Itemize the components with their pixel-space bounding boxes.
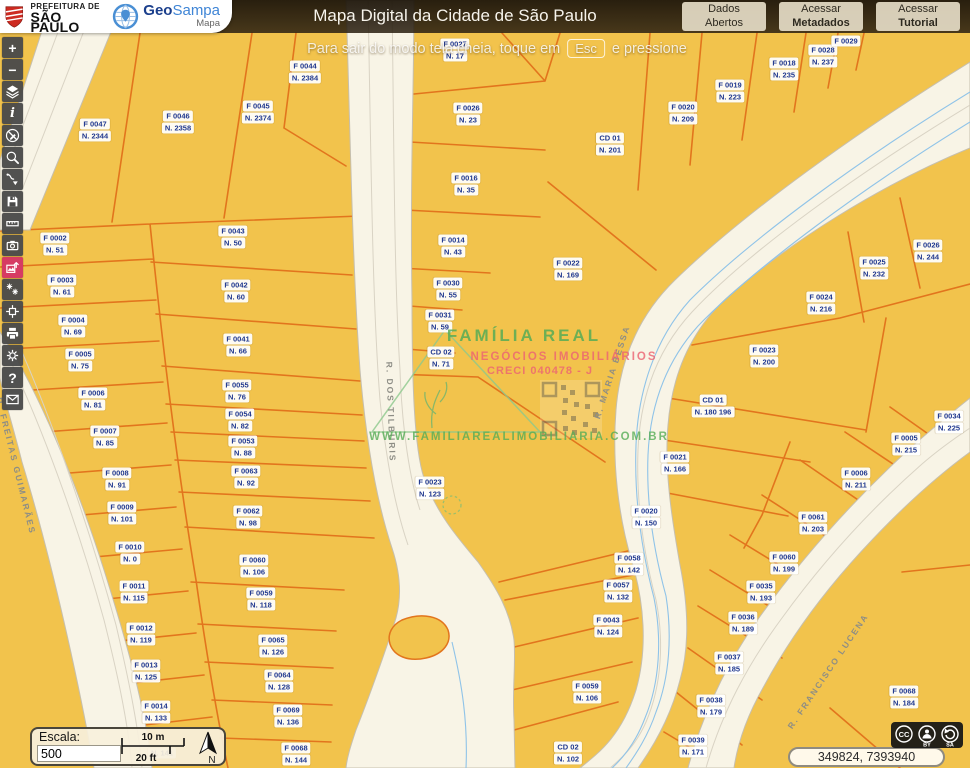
- tool-settings[interactable]: [2, 345, 23, 366]
- layers-icon: [5, 84, 20, 99]
- scale-bar: 10 m 20 ft: [118, 730, 190, 765]
- cc-by-label: BY: [923, 743, 931, 749]
- tool-print[interactable]: [2, 323, 23, 344]
- save-icon: [5, 194, 20, 209]
- search-icon: [5, 150, 20, 165]
- header-button-tutorial[interactable]: AcessarTutorial: [876, 2, 960, 31]
- north-arrow-icon: N: [195, 730, 221, 765]
- disable-drawing-icon: [5, 128, 20, 143]
- header-button-abertos[interactable]: DadosAbertos: [682, 2, 766, 31]
- settings-icon: [5, 348, 20, 363]
- prefeitura-label-line2: SÃO PAULO: [31, 12, 102, 32]
- tool-measure[interactable]: [2, 213, 23, 234]
- header-button-metadados[interactable]: AcessarMetadados: [779, 2, 863, 31]
- page-title: Mapa Digital da Cidade de São Paulo: [313, 6, 597, 26]
- tool-zoom-in[interactable]: +: [2, 37, 23, 58]
- geosampa-globe-icon: [112, 3, 139, 30]
- header-button-line1: Dados: [691, 3, 757, 17]
- header-button-line2: Tutorial: [885, 17, 951, 31]
- cc-by-person-icon: [925, 730, 929, 734]
- traffic-island: [389, 616, 449, 659]
- map-canvas[interactable]: FAMÍLIA REAL NEGÓCIOS IMOBILIÁRIOS CRECI…: [0, 0, 970, 768]
- tool-center-map[interactable]: [2, 301, 23, 322]
- help-icon: ?: [8, 370, 17, 386]
- brand-geo: Geo: [143, 2, 172, 19]
- contact-icon: [5, 392, 20, 407]
- scale-label: Escala:: [39, 730, 80, 744]
- print-icon: [5, 326, 20, 341]
- header-button-line2: Abertos: [691, 17, 757, 31]
- street-photos-icon: [5, 238, 20, 253]
- tool-identify[interactable]: i: [2, 103, 23, 124]
- tool-zoom-out[interactable]: −: [2, 59, 23, 80]
- qr-code-icon: [540, 380, 602, 438]
- cc-sa-label: SA: [946, 743, 954, 749]
- scale-panel: Escala: 10 m 20 ft N: [30, 727, 226, 766]
- cc-icon: CC: [899, 730, 910, 739]
- cc-license-badge[interactable]: CC BY SA: [891, 722, 963, 753]
- geosampa-app: FAMÍLIA REAL NEGÓCIOS IMOBILIÁRIOS CRECI…: [0, 0, 970, 768]
- tool-search[interactable]: [2, 147, 23, 168]
- header-button-line1: Acessar: [788, 3, 854, 17]
- prefeitura-crest-icon: [5, 4, 24, 30]
- map-toolbar: +−i?: [2, 37, 23, 410]
- north-label: N: [208, 755, 215, 765]
- zoom-out-icon: −: [8, 62, 16, 78]
- measure-icon: [5, 216, 20, 231]
- tool-disable-drawing[interactable]: [2, 125, 23, 146]
- header-bar: PREFEITURA DE SÃO PAULO GeoSampa Mapa Ma…: [0, 0, 970, 33]
- map-base-layer: [0, 0, 970, 768]
- brand-pill: PREFEITURA DE SÃO PAULO GeoSampa Mapa: [0, 0, 232, 33]
- tool-import-route[interactable]: [2, 169, 23, 190]
- tool-layers[interactable]: [2, 81, 23, 102]
- zoom-in-icon: +: [8, 40, 16, 56]
- scale-meters: 10 m: [142, 732, 165, 743]
- tool-contact[interactable]: [2, 389, 23, 410]
- scale-input[interactable]: [37, 745, 121, 762]
- vegetation-icon: [5, 282, 20, 297]
- tool-export-image[interactable]: [2, 257, 23, 278]
- import-route-icon: [5, 172, 20, 187]
- center-map-icon: [5, 304, 20, 319]
- identify-icon: i: [10, 106, 15, 121]
- tool-save[interactable]: [2, 191, 23, 212]
- tool-help[interactable]: ?: [2, 367, 23, 388]
- tool-street-photos[interactable]: [2, 235, 23, 256]
- brand-mapa: Mapa: [196, 16, 220, 31]
- header-button-line1: Acessar: [885, 3, 951, 17]
- header-button-line2: Metadados: [788, 17, 854, 31]
- export-image-icon: [5, 260, 20, 275]
- tool-vegetation[interactable]: [2, 279, 23, 300]
- geosampa-logo: GeoSampa Mapa: [112, 3, 220, 31]
- scale-feet: 20 ft: [136, 753, 157, 764]
